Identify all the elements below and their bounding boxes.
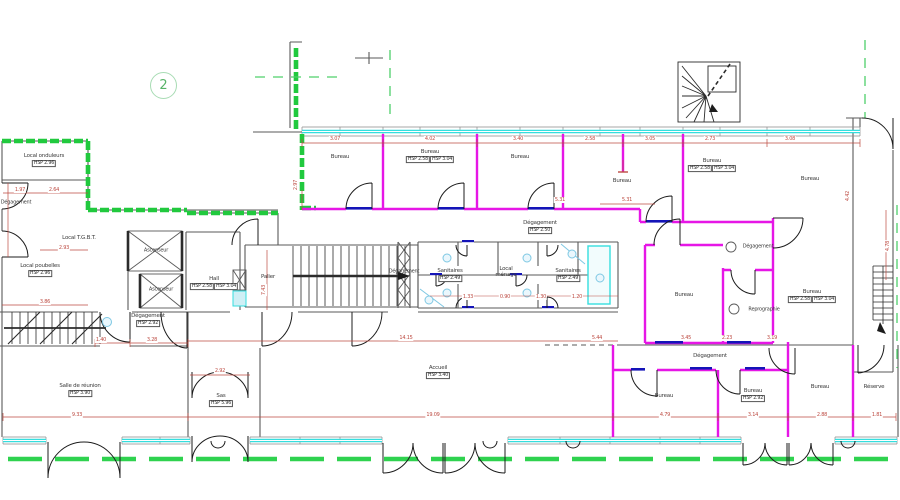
sheet-number-badge: 2	[150, 72, 177, 99]
windows-cyan-centerline	[3, 132, 897, 441]
stairs-winding-top	[678, 62, 740, 122]
hall-duct-cyan	[233, 291, 246, 306]
floor-plan-drawing	[0, 0, 900, 500]
stairs-right	[873, 266, 893, 334]
walls-gray	[0, 42, 898, 437]
sheet-number: 2	[159, 78, 167, 93]
sanitary-fixtures	[103, 244, 605, 327]
window-frames-gray	[3, 127, 897, 444]
dimension-lines-red	[2, 139, 896, 421]
elevators	[128, 231, 410, 308]
windows-cyan	[3, 132, 897, 441]
stairs-main	[293, 246, 410, 306]
walls-magenta	[302, 134, 853, 437]
floor-plan: Local onduleurs HSP 2.96 Dégagement Loca…	[0, 0, 900, 500]
construction-lines-green-dashed	[255, 40, 897, 368]
stairs-left	[4, 312, 106, 344]
doors	[2, 118, 893, 478]
